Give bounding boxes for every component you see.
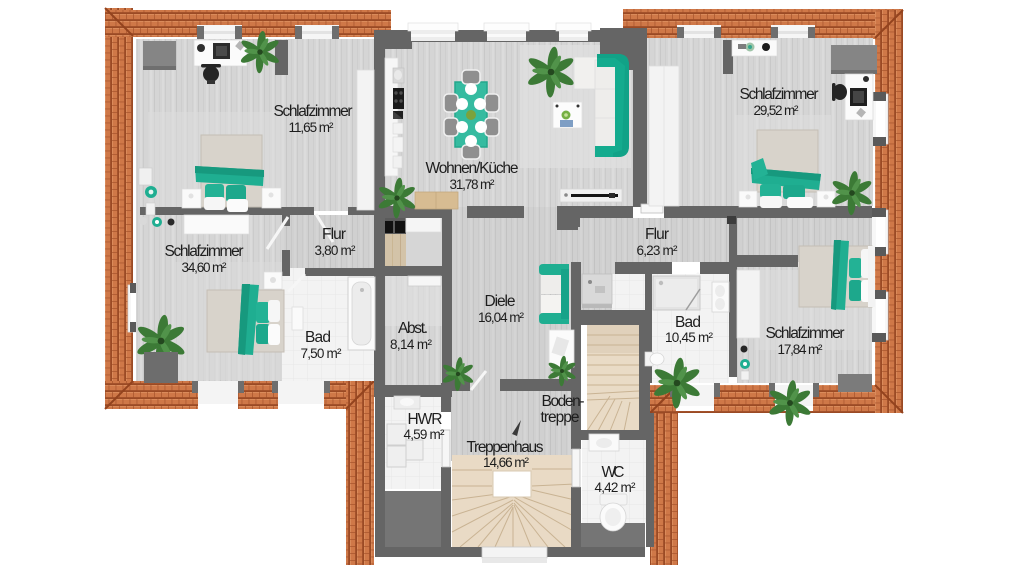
svg-text:Flur: Flur	[645, 226, 669, 243]
svg-text:11,65 m²: 11,65 m²	[289, 120, 335, 135]
svg-text:HWR: HWR	[408, 411, 443, 428]
svg-text:Diele: Diele	[485, 293, 516, 310]
svg-text:16,04 m²: 16,04 m²	[478, 310, 525, 325]
svg-text:10,45 m²: 10,45 m²	[665, 330, 714, 345]
svg-text:31,78 m²: 31,78 m²	[450, 177, 496, 192]
svg-text:Flur: Flur	[322, 226, 346, 243]
svg-text:Schlafzimmer: Schlafzimmer	[766, 325, 845, 342]
svg-text:Treppenhaus: Treppenhaus	[467, 439, 544, 456]
svg-text:4,42 m²: 4,42 m²	[595, 480, 637, 495]
svg-text:29,52 m²: 29,52 m²	[754, 103, 800, 118]
svg-text:Bad: Bad	[675, 314, 701, 331]
svg-text:14,66 m²: 14,66 m²	[483, 455, 530, 470]
svg-text:7,50 m²: 7,50 m²	[301, 346, 343, 361]
svg-text:Bad: Bad	[305, 329, 331, 346]
svg-text:4,59 m²: 4,59 m²	[404, 427, 446, 442]
svg-text:WC: WC	[602, 464, 625, 481]
svg-text:6,23 m²: 6,23 m²	[637, 243, 679, 258]
svg-text:Schlafzimmer: Schlafzimmer	[274, 103, 353, 120]
svg-text:Wohnen/Küche: Wohnen/Küche	[426, 160, 519, 177]
svg-text:Schlafzimmer: Schlafzimmer	[740, 86, 819, 103]
svg-text:treppe: treppe	[541, 409, 580, 426]
svg-text:Abst.: Abst.	[398, 320, 428, 337]
svg-text:3,80 m²: 3,80 m²	[315, 243, 357, 258]
svg-text:Boden-: Boden-	[542, 393, 585, 410]
svg-text:17,84 m²: 17,84 m²	[778, 342, 824, 357]
svg-text:34,60 m²: 34,60 m²	[182, 260, 228, 275]
svg-text:Schlafzimmer: Schlafzimmer	[165, 243, 244, 260]
svg-text:8,14 m²: 8,14 m²	[390, 337, 433, 352]
